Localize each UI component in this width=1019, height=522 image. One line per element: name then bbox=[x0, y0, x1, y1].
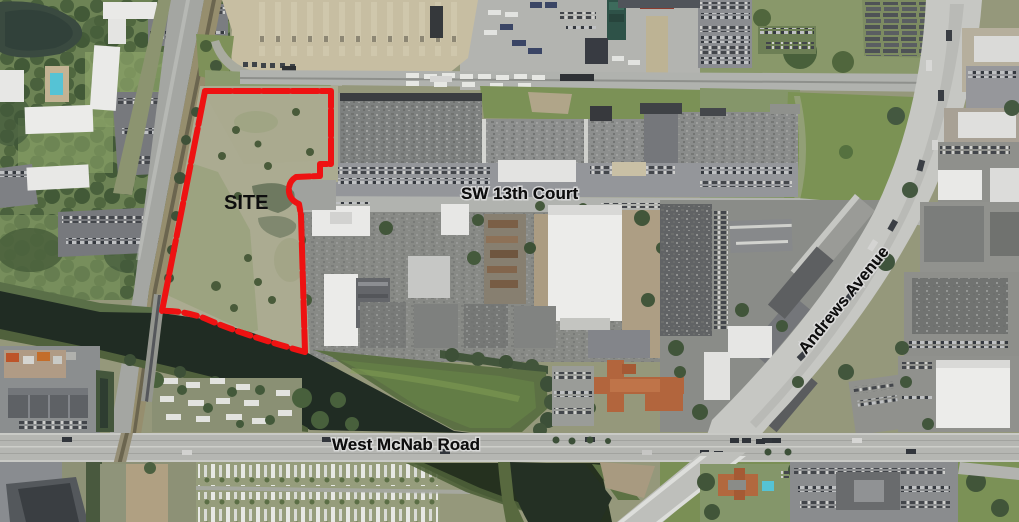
svg-text:SW 13th Court: SW 13th Court bbox=[461, 184, 578, 203]
svg-text:West McNab Road: West McNab Road bbox=[332, 435, 480, 454]
svg-text:SITE: SITE bbox=[224, 192, 268, 214]
